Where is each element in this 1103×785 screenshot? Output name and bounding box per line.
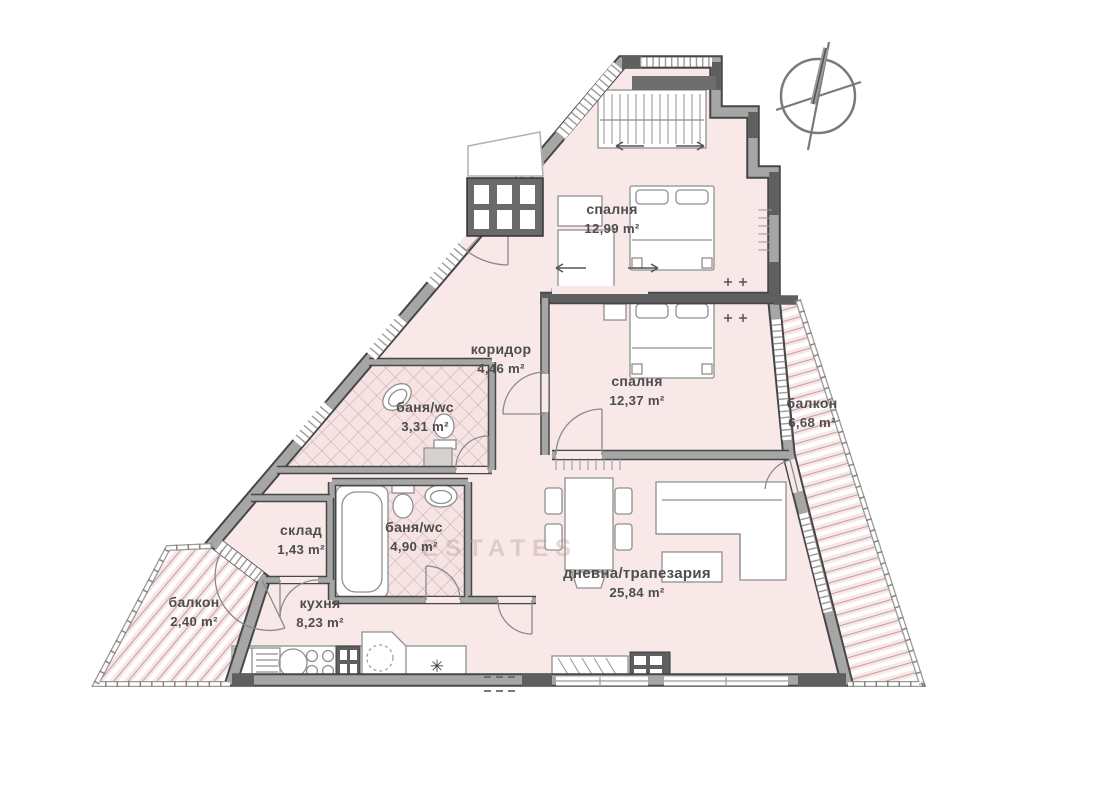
room-area: 3,31 m² (345, 417, 505, 436)
compass-icon (776, 42, 861, 150)
room-label-balcony-left: балкон 2,40 m² (114, 593, 274, 631)
room-area: 12,37 m² (557, 391, 717, 410)
room-name: склад (221, 521, 381, 540)
corner-unit (362, 632, 406, 680)
room-name: балкон (732, 394, 892, 413)
room-name: коридор (421, 340, 581, 359)
floor-plan-canvas: ✳ (0, 0, 1103, 785)
beam (632, 76, 716, 90)
nightstand (604, 304, 626, 320)
room-label-bedroom-1: спалня 12,99 m² (532, 200, 692, 238)
kitchen-star-symbol: ✳ (430, 657, 444, 676)
dresser (558, 230, 614, 288)
room-area: 25,84 m² (517, 583, 757, 602)
room-name: спалня (532, 200, 692, 219)
room-area: 6,68 m² (732, 413, 892, 432)
room-name: баня/wc (345, 398, 505, 417)
room-label-balcony-right: балкон 6,68 m² (732, 394, 892, 432)
room-area: 1,43 m² (221, 540, 381, 559)
room-name: спалня (557, 372, 717, 391)
room-label-bathroom-1: баня/wc 3,31 m² (345, 398, 505, 436)
room-area: 12,99 m² (532, 219, 692, 238)
room-label-living-dining: дневна/трапезария 25,84 m² (517, 564, 757, 602)
room-name: балкон (114, 593, 274, 612)
room-area: 2,40 m² (114, 612, 274, 631)
room-label-storage: склад 1,43 m² (221, 521, 381, 559)
floor-plan-page: ✳ (0, 0, 1103, 785)
washer (424, 448, 452, 468)
room-area: 4,46 m² (421, 359, 581, 378)
room-label-corridor: коридор 4,46 m² (421, 340, 581, 378)
room-name: дневна/трапезария (517, 564, 757, 583)
room-label-bedroom-2: спалня 12,37 m² (557, 372, 717, 410)
